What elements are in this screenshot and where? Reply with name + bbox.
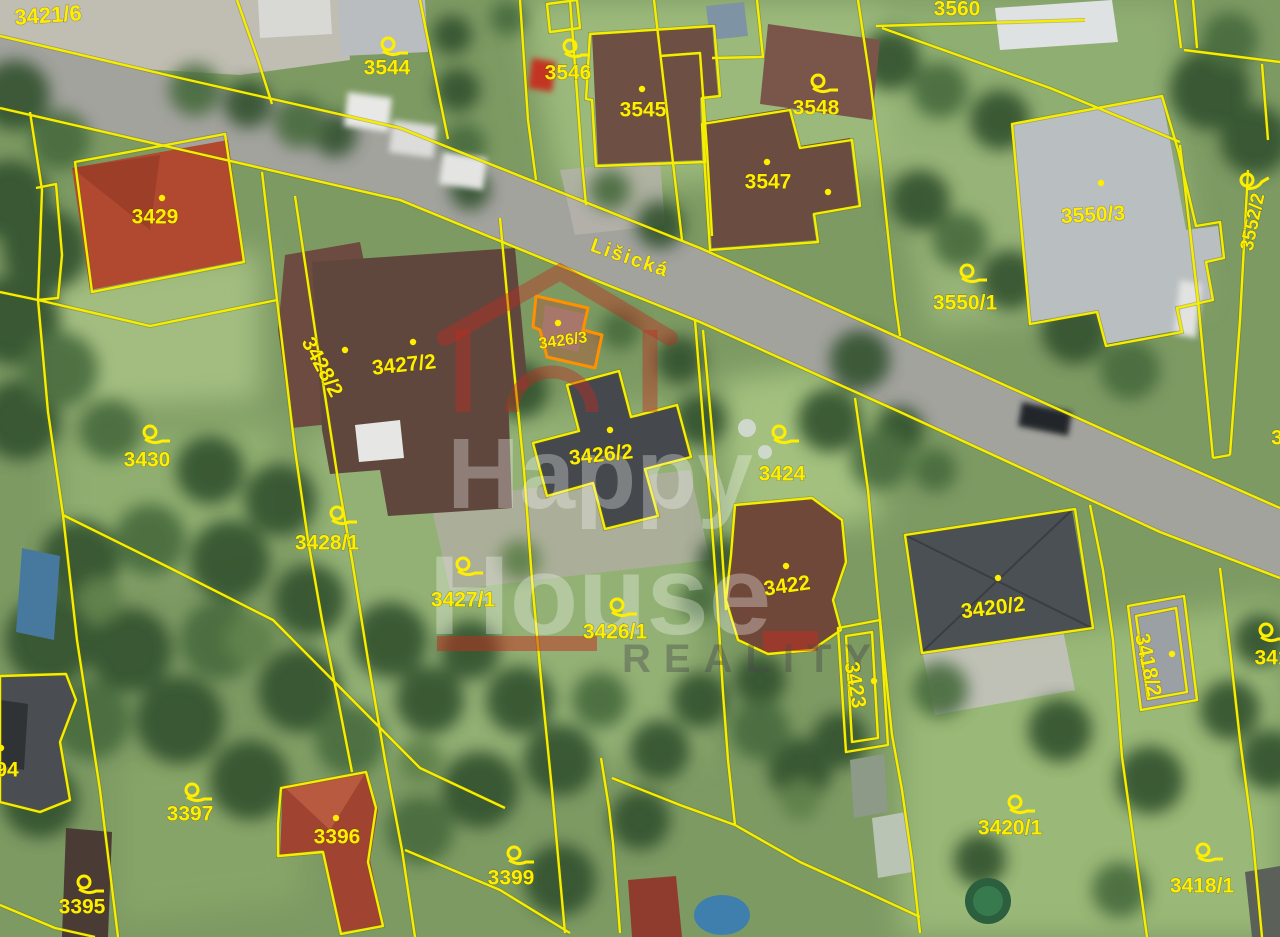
parcel-label: 3418/1 bbox=[1170, 875, 1235, 898]
parcel-label: 3420/1 bbox=[978, 817, 1043, 840]
parcel-dot-marker-icon bbox=[764, 159, 770, 165]
parcel-label: 3550/1 bbox=[933, 292, 998, 315]
parcel-label: 3550/3 bbox=[1060, 202, 1125, 228]
map-svg: Happy House REALITY Lišická 3421/6354435… bbox=[0, 0, 1280, 937]
parcel-dot-marker-icon bbox=[555, 320, 561, 326]
parcel-dot-marker-icon bbox=[639, 86, 645, 92]
parcel-dot-marker-icon bbox=[1169, 651, 1175, 657]
parcel-label: 3545 bbox=[620, 99, 667, 122]
parcel-dot-marker-icon bbox=[995, 575, 1001, 581]
parcel-label: 3421/6 bbox=[14, 0, 83, 30]
parcel-label: 3426/1 bbox=[583, 621, 648, 644]
parcel-label: 3399 bbox=[488, 867, 535, 890]
parcel-dot-marker-icon bbox=[410, 339, 416, 345]
parcel-label: 3424 bbox=[759, 463, 806, 486]
parcel-label: 3395 bbox=[59, 896, 106, 919]
parcel-dot-marker-icon bbox=[1098, 180, 1104, 186]
parcel-label: 3560 bbox=[934, 0, 981, 21]
parcel-label: 3548 bbox=[793, 97, 840, 120]
parcel-dot-marker-icon bbox=[607, 427, 613, 433]
parcel-label: 3428/1 bbox=[295, 532, 360, 555]
parcel-dot-marker-icon bbox=[825, 189, 831, 195]
parcel-label: 341 bbox=[1254, 647, 1280, 670]
parcel-label: 3396 bbox=[314, 826, 361, 849]
cadastral-aerial-map[interactable]: Happy House REALITY Lišická 3421/6354435… bbox=[0, 0, 1280, 937]
parcel-label: 3397 bbox=[167, 803, 214, 826]
parcel-label: 3546 bbox=[545, 62, 592, 85]
watermark-bar-left bbox=[437, 636, 597, 651]
parcel-label: 3429 bbox=[132, 206, 179, 229]
parcel-label: 3427/1 bbox=[431, 589, 496, 612]
parcel-label: 3547 bbox=[745, 171, 792, 194]
parcel-dot-marker-icon bbox=[871, 678, 877, 684]
parcel-dot-marker-icon bbox=[159, 195, 165, 201]
watermark-word-1: Happy bbox=[447, 418, 753, 530]
parcel-dot-marker-icon bbox=[333, 815, 339, 821]
parcel-label: 3430 bbox=[124, 449, 171, 472]
parcel-label: 3544 bbox=[364, 57, 411, 80]
parcel-label: 94 bbox=[0, 759, 19, 782]
parcel-dot-marker-icon bbox=[783, 563, 789, 569]
parcel-label: 3 bbox=[1271, 427, 1280, 450]
parcel-dot-marker-icon bbox=[342, 347, 348, 353]
